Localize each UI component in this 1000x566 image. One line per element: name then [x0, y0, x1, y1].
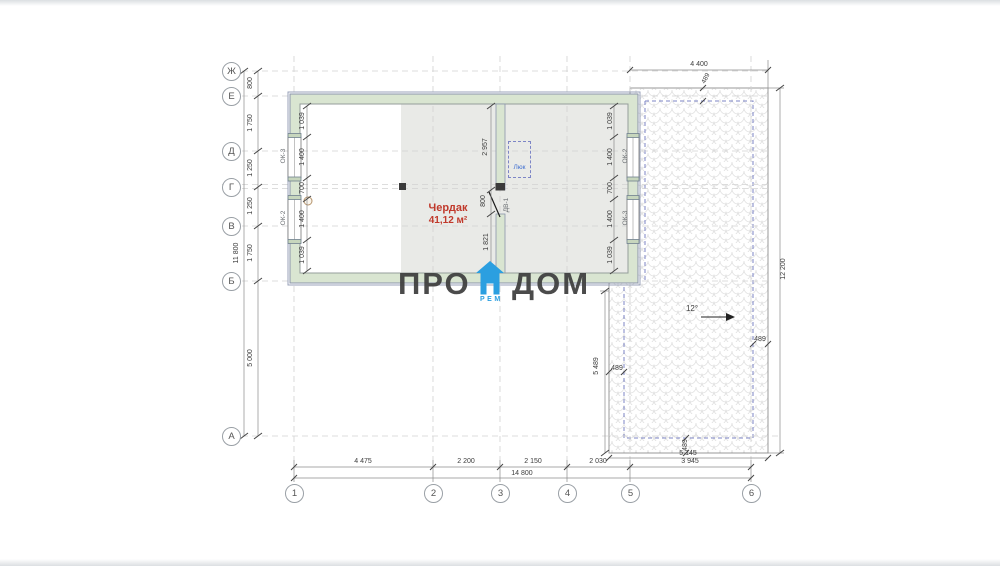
room-name: Чердак	[416, 202, 480, 214]
dim-inner-left-5: 1 039	[299, 237, 307, 273]
window-tag-ok3-right: ОК-3	[622, 200, 630, 236]
dim-roof-right: 12 200	[780, 251, 788, 287]
axis-row-zh: Ж	[222, 62, 241, 81]
axis-col-6: 6	[742, 484, 761, 503]
floor-plan-canvas: Ж Е Д Г В Б А 1 2 3 4 5 6 800 1 750 1 25…	[0, 0, 1000, 566]
dim-roof-offset-bottom: 489	[682, 427, 690, 463]
dim-bottom-5: 3 945	[670, 458, 710, 466]
post-marker-left	[399, 183, 406, 190]
axis-row-b: Б	[222, 272, 241, 291]
axis-col-4: 4	[558, 484, 577, 503]
axis-col-2: 2	[424, 484, 443, 503]
photo-edge-bottom	[0, 559, 1000, 566]
dim-left-2: 1 750	[247, 105, 255, 141]
dim-left-3: 1 250	[247, 150, 255, 186]
dim-roof-offset-left: 489	[606, 365, 628, 373]
ceiling-hatch-outline	[508, 141, 531, 178]
dim-roof-left: 5 489	[593, 348, 601, 384]
roof-slope-label: 12°	[680, 305, 704, 313]
window-tag-ok2-left: ОК-2	[280, 200, 288, 236]
watermark-subtext: РЕМ	[480, 296, 503, 303]
axis-col-1: 1	[285, 484, 304, 503]
dim-inner-left-4: 1 400	[299, 201, 307, 237]
dim-left-1: 800	[247, 65, 255, 101]
dim-bottom-1: 4 475	[343, 458, 383, 466]
watermark-text-right: ДОМ	[512, 266, 590, 302]
dim-partition-2: 800	[480, 183, 488, 219]
dim-inner-right-4: 1 400	[607, 201, 615, 237]
axis-row-e: Е	[222, 87, 241, 106]
dim-inner-left-1: 1 039	[299, 103, 307, 139]
axis-col-5: 5	[621, 484, 640, 503]
dim-roof-offset-right: 489	[749, 336, 771, 344]
dim-bottom-4: 2 030	[578, 458, 618, 466]
ceiling-hatch-label: Люк	[508, 164, 531, 171]
room-area: 41,12 м²	[416, 215, 480, 226]
window-tag-ok3-left: ОК-3	[280, 138, 288, 174]
dim-left-5: 1 750	[247, 235, 255, 271]
dim-inner-right-5: 1 039	[607, 237, 615, 273]
dim-bottom-3: 2 150	[513, 458, 553, 466]
axis-row-d: Д	[222, 142, 241, 161]
dim-left-total: 11 800	[233, 235, 241, 271]
photo-edge-top	[0, 0, 1000, 6]
door-tag-dv1: ДВ-1	[503, 187, 511, 223]
window-tag-ok2-right: ОК-2	[622, 138, 630, 174]
axis-col-3: 3	[491, 484, 510, 503]
axis-row-g: Г	[222, 178, 241, 197]
dim-partition-3: 1 821	[483, 224, 491, 260]
dim-left-lower: 5 000	[247, 340, 255, 376]
axis-row-v: В	[222, 217, 241, 236]
dim-bottom-total: 14 800	[502, 470, 542, 478]
dim-bottom-2: 2 200	[446, 458, 486, 466]
dim-partition-1: 2 957	[482, 129, 490, 165]
watermark-text-left: ПРО	[398, 266, 471, 302]
dim-inner-right-1: 1 039	[607, 103, 615, 139]
axis-row-a: А	[222, 427, 241, 446]
dim-left-4: 1 250	[247, 188, 255, 224]
